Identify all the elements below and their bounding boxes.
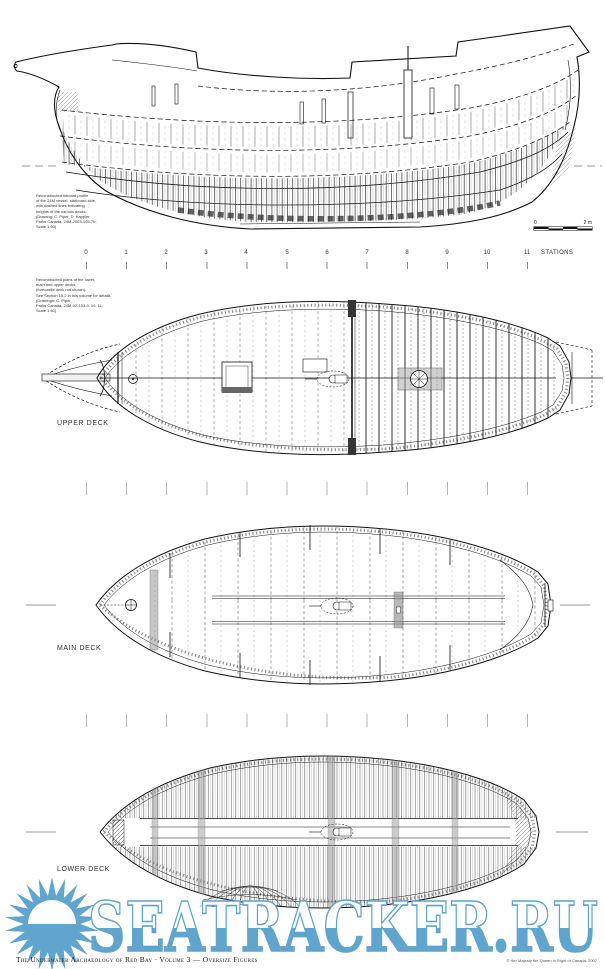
upper-deck-label: UPPER DECK [57, 420, 109, 427]
station-ticks [86, 262, 529, 269]
station-label: 7 [365, 250, 368, 256]
station-label: 2 [164, 250, 167, 256]
station-label: 5 [285, 250, 288, 256]
station-label: 11 [524, 250, 530, 256]
main-deck-plan-drawing [0, 510, 605, 695]
scale-bar-segment-row [534, 229, 592, 231]
hull-profile [14, 26, 602, 229]
station-label: 3 [204, 250, 207, 256]
station-ticks [86, 714, 529, 727]
station-label: 6 [325, 250, 328, 256]
scale-end-label: 2 m [584, 220, 592, 226]
upper-deck-plan [42, 296, 603, 460]
station-label: 9 [445, 250, 448, 256]
station-label: 4 [244, 250, 247, 256]
profile-caption: Reconstructed inboard profile of the 24M… [36, 193, 96, 229]
scale-bar: 0 2 m [534, 220, 592, 230]
station-label: 1 [124, 250, 127, 256]
stations-ruler: 0 1 2 3 4 5 6 7 8 9 10 11 STATIONS [0, 250, 605, 272]
scale-start-label: 0 [534, 220, 537, 226]
station-label: 0 [84, 250, 87, 256]
main-deck-label: MAIN DECK [57, 645, 101, 652]
station-label: 8 [405, 250, 408, 256]
upper-deck-plan-drawing [0, 290, 605, 460]
station-ticks [86, 482, 529, 495]
footer-publication-line: The Underwater Archaeology of Red Bay · … [16, 955, 258, 964]
footer-copyright-line: © Her Majesty the Queen in Right of Cana… [506, 958, 597, 963]
lower-deck-label: LOWER DECK [57, 866, 110, 873]
figure-page: Reconstructed inboard profile of the 24M… [0, 0, 605, 969]
stations-title: STATIONS [541, 250, 573, 256]
caption-line: Scale 1:60) [36, 224, 96, 229]
station-label: 10 [484, 250, 491, 256]
main-deck-plan [26, 525, 590, 685]
